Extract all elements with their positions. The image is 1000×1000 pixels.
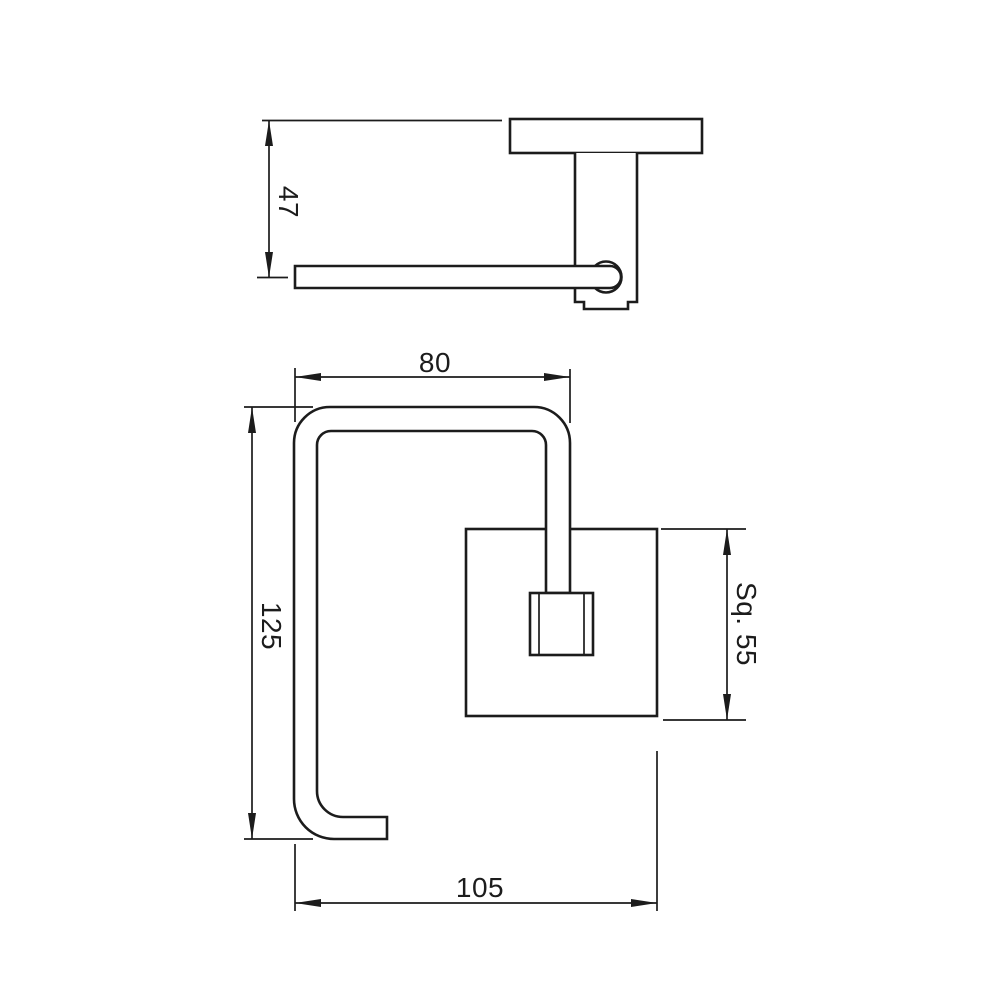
- dimension-105-arrow-right: [631, 899, 657, 907]
- dimension-47-arrow-up: [265, 121, 273, 147]
- side-wall-plate: [510, 119, 702, 153]
- dimension-47-label: 47: [273, 186, 304, 218]
- dimension-125-label: 125: [256, 602, 287, 650]
- dimension-47-arrow-down: [265, 252, 273, 278]
- dimension-80-arrow-left: [295, 373, 321, 381]
- side-roll-bar: [295, 266, 621, 288]
- dimension-sq55-arrow-up: [723, 529, 731, 555]
- dimension-47: 47: [257, 121, 502, 278]
- front-view: [294, 407, 657, 839]
- dimension-125-arrow-down: [248, 813, 256, 839]
- dimension-sq55-label: Sq. 55: [731, 582, 762, 666]
- dimension-105-label: 105: [456, 872, 504, 903]
- technical-drawing-page: 47 80 125 105: [0, 0, 1000, 1000]
- dimension-105-arrow-left: [295, 899, 321, 907]
- dimension-sq55-arrow-down: [723, 694, 731, 720]
- dimension-125-arrow-up: [248, 407, 256, 433]
- technical-drawing: 47 80 125 105: [0, 0, 1000, 1000]
- side-view: [295, 119, 702, 309]
- dimension-80-label: 80: [419, 347, 451, 378]
- dimension-80-arrow-right: [544, 373, 570, 381]
- dimension-sq55: Sq. 55: [661, 529, 762, 720]
